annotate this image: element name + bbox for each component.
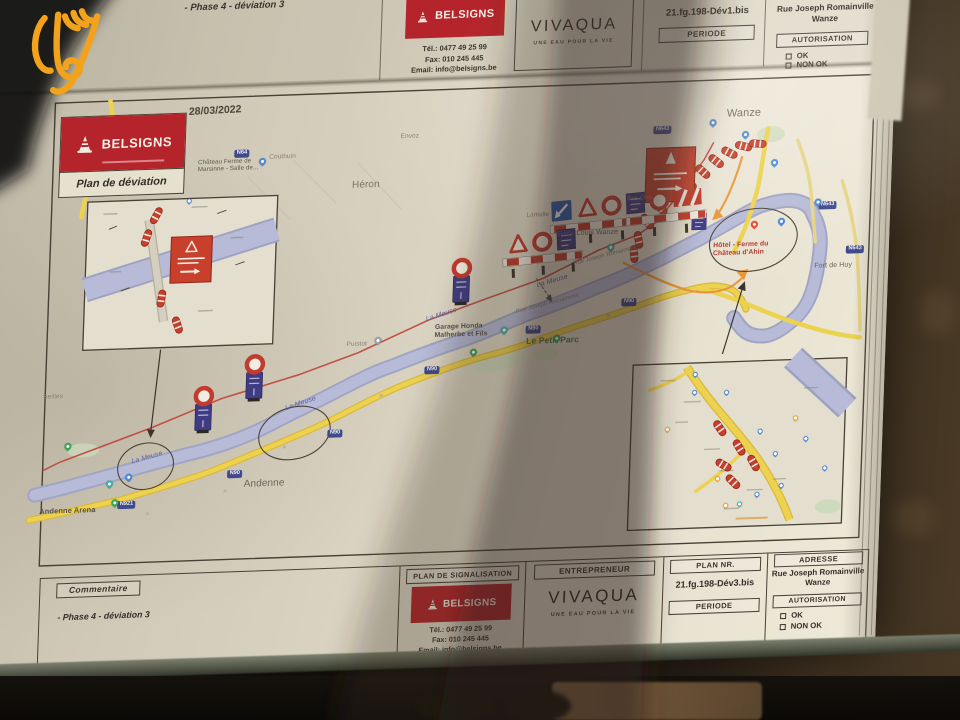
road-badge: N90 — [621, 298, 637, 306]
map-label: Puistot — [346, 340, 367, 348]
wood-table-leg — [552, 682, 762, 720]
checkbox — [780, 623, 786, 629]
vivaqua-logo: VIVAQUA UNE EAU POUR LA VIE — [525, 584, 663, 619]
map-pin — [605, 242, 615, 252]
map-pin — [714, 475, 721, 482]
commentaire-text: - Phase 4 - déviation 3 — [57, 609, 150, 622]
belsigns-wordmark: BELSIGNS — [435, 8, 495, 22]
road-badge: N90 — [424, 366, 440, 374]
map-legend: BELSIGNS Plan de déviation — [58, 113, 187, 199]
map-pin — [723, 389, 730, 396]
belsigns-logo: BELSIGNS — [411, 584, 512, 624]
map-pin — [104, 479, 114, 489]
map-pin — [792, 414, 799, 421]
vivaqua-wordmark: VIVAQUA — [531, 15, 618, 36]
map-label: La Meuse — [131, 450, 163, 466]
map-label: Rue Joseph Romainville — [515, 292, 580, 315]
map-pin — [722, 502, 729, 509]
map-pin — [769, 158, 779, 168]
map-label: Fort de Huy — [814, 261, 852, 270]
entrepreneur-header: ENTREPRENEUR — [534, 560, 655, 579]
road-badge: N643 — [818, 201, 837, 209]
map-label: Hôtel - Ferme du Château d'Ahin — [713, 240, 769, 257]
periode-header: PERIODE — [668, 598, 759, 615]
map-pin — [740, 130, 750, 140]
plan-signalisation-header: PLAN DE SIGNALISATION — [406, 565, 519, 584]
map-label: Stade Louis Wanze — [556, 229, 618, 239]
map-label: Andenne — [244, 477, 285, 490]
map-pin — [123, 472, 133, 482]
vivaqua-wordmark: VIVAQUA — [548, 585, 640, 608]
map-pin — [691, 389, 698, 396]
upper-vivaqua-logo: VIVAQUA UNE EAU POUR LA VIE — [514, 0, 635, 71]
plan-signalisation-cell: PLAN DE SIGNALISATION BELSIGNS Tél.: 047… — [396, 562, 525, 657]
upper-belsigns-logo: BELSIGNS — [405, 0, 505, 39]
map-label: La Meuse — [425, 307, 458, 324]
traffic-cone-icon — [73, 134, 96, 155]
ok-label: OK — [791, 610, 803, 619]
map-pin — [468, 347, 478, 357]
plan-nr-value: 21.fg.198-Dév3.bis — [663, 577, 766, 591]
upper-belsigns-contact: Tél.: 0477 49 25 99 Fax: 010 245 445 Ema… — [382, 41, 527, 78]
road-badge: N90 — [525, 325, 541, 333]
vivaqua-tagline: UNE EAU POUR LA VIE — [551, 609, 636, 618]
traffic-cone-icon — [426, 598, 439, 610]
map-pin — [776, 216, 786, 226]
table-highlight — [898, 80, 940, 110]
map-label: Couthuin — [269, 153, 296, 161]
map-pin — [736, 500, 743, 507]
map-pin — [62, 441, 72, 451]
map-label: Héron — [352, 179, 380, 191]
commentaire-header: Commentaire — [56, 580, 140, 598]
map-pin — [373, 336, 383, 346]
belsigns-wordmark: BELSIGNS — [443, 597, 497, 610]
map-label: Le Petit Parc — [526, 335, 579, 346]
shadow-blob — [505, 690, 571, 720]
belsigns-tagline-bar — [102, 160, 164, 164]
map-pin — [821, 464, 828, 471]
paper-document: - Phase 4 - déviation 3 BELSIGNS Tél.: 0… — [0, 0, 899, 676]
non-ok-label: NON OK — [791, 621, 822, 631]
map-label: Wanze — [727, 107, 762, 121]
shadow-blob — [416, 692, 494, 720]
map-pin — [109, 498, 119, 508]
map-label: Seilles — [43, 393, 63, 401]
belsigns-wordmark: BELSIGNS — [101, 134, 172, 151]
entrepreneur-cell: ENTREPRENEUR VIVAQUA UNE EAU POUR LA VIE — [522, 557, 663, 652]
map-label: Garage Honda Malherbe et Fils — [434, 322, 487, 339]
photo-scene: - Phase 4 - déviation 3 BELSIGNS Tél.: 0… — [0, 0, 960, 720]
plan-nr-header: PLAN NR. — [670, 557, 761, 574]
map-pin — [756, 428, 763, 435]
vivaqua-tagline: UNE EAU POUR LA VIE — [533, 38, 614, 47]
map-pin — [771, 450, 778, 457]
map-pin — [185, 198, 192, 205]
road-badge: N90 — [327, 429, 343, 437]
map-pin — [257, 157, 267, 167]
map-label: Rue Joseph Romainville — [573, 244, 638, 267]
table-highlight — [890, 500, 936, 536]
map-date: 28/03/2022 — [189, 103, 242, 118]
checkbox — [780, 612, 786, 618]
map-pin — [499, 325, 509, 335]
road-badge: N64 — [234, 149, 250, 157]
map-pin — [663, 426, 670, 433]
map-pin — [777, 482, 784, 489]
map-label: Envoz — [400, 132, 419, 140]
road-badge: N921 — [117, 501, 136, 509]
table-highlight — [920, 290, 956, 336]
map-pin — [813, 197, 823, 207]
map-pin — [802, 435, 809, 442]
map-pin — [551, 333, 561, 343]
checkbox — [786, 53, 792, 59]
map-label: La Meuse — [536, 273, 568, 290]
traffic-cone-icon — [416, 10, 430, 24]
map-label: Bas-Oha — [627, 195, 652, 203]
map-pin — [753, 491, 760, 498]
belsigns-logo: BELSIGNS — [60, 114, 186, 172]
ok-label: OK — [797, 51, 809, 60]
map-label: Château Ferme de Marsinne - Salle de... — [198, 158, 259, 174]
autorisation-checks: OK NON OK — [780, 610, 823, 634]
road-badge: N90 — [227, 470, 243, 478]
map-label: Lamalle — [526, 212, 549, 220]
map-pin — [749, 219, 759, 229]
map-pin — [691, 371, 698, 378]
map-pin — [708, 118, 718, 128]
map-label: Andenne Arena — [39, 506, 96, 516]
plan-nr-cell: PLAN NR. 21.fg.198-Dév3.bis PERIODE — [660, 554, 767, 648]
road-badge: N643 — [653, 126, 672, 134]
plan-title: Plan de déviation — [59, 168, 184, 197]
map-label: La Meuse — [284, 395, 316, 413]
